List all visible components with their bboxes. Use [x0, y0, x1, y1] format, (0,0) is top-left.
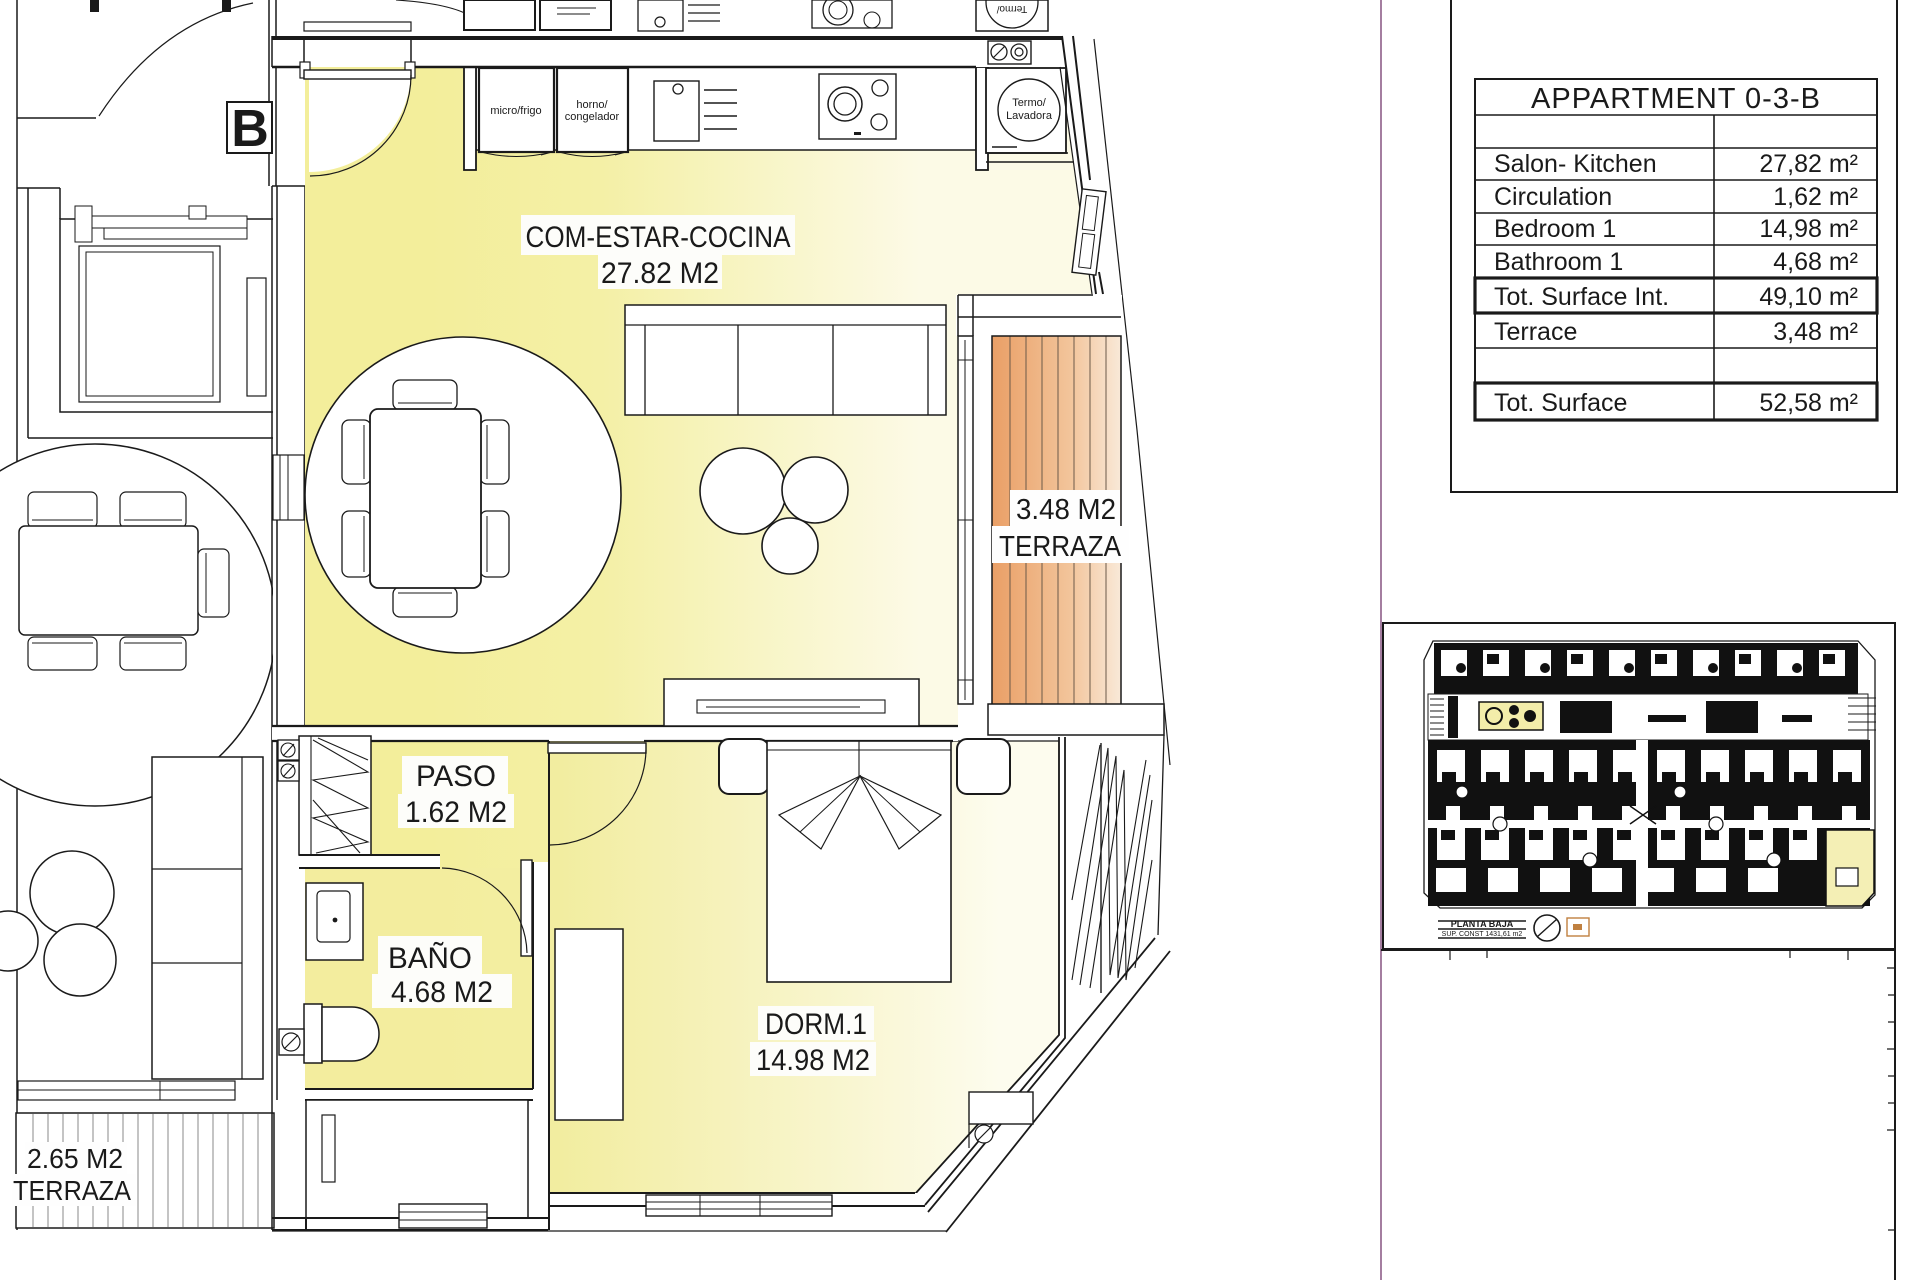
svg-text:4,68 m²: 4,68 m²	[1773, 248, 1858, 276]
svg-text:1.62 M2: 1.62 M2	[405, 796, 507, 829]
svg-text:14.98 M2: 14.98 M2	[756, 1044, 870, 1077]
svg-text:PLANTA BAJA: PLANTA BAJA	[1451, 919, 1514, 929]
svg-text:1,62 m²: 1,62 m²	[1773, 183, 1858, 211]
svg-text:4.68 M2: 4.68 M2	[391, 976, 493, 1009]
svg-text:Bathroom 1: Bathroom 1	[1494, 248, 1623, 276]
svg-text:3.48 M2: 3.48 M2	[1016, 494, 1116, 526]
svg-text:BAÑO: BAÑO	[388, 941, 472, 975]
svg-text:Lavadora: Lavadora	[1006, 110, 1053, 122]
svg-text:DORM.1: DORM.1	[765, 1008, 867, 1041]
svg-text:horno/: horno/	[576, 99, 608, 111]
svg-text:52,58 m²: 52,58 m²	[1759, 389, 1858, 417]
svg-text:Salon- Kitchen: Salon- Kitchen	[1494, 150, 1657, 178]
svg-text:27,82 m²: 27,82 m²	[1759, 150, 1858, 178]
svg-text:3,48 m²: 3,48 m²	[1773, 318, 1858, 346]
svg-text:congelador: congelador	[565, 111, 620, 123]
svg-text:Tot. Surface Int.: Tot. Surface Int.	[1494, 283, 1669, 311]
svg-text:27.82 M2: 27.82 M2	[601, 257, 719, 290]
svg-text:PASO: PASO	[416, 760, 496, 793]
svg-text:Bedroom 1: Bedroom 1	[1494, 215, 1616, 243]
svg-text:COM-ESTAR-COCINA: COM-ESTAR-COCINA	[526, 221, 791, 254]
svg-text:Tot. Surface: Tot. Surface	[1494, 389, 1627, 417]
svg-text:Termo/: Termo/	[996, 3, 1027, 14]
svg-text:Circulation: Circulation	[1494, 183, 1612, 211]
svg-text:Termo/: Termo/	[1012, 97, 1047, 109]
svg-text:APPARTMENT 0-3-B: APPARTMENT 0-3-B	[1531, 83, 1821, 115]
svg-text:TERRAZA: TERRAZA	[999, 531, 1122, 563]
svg-text:B: B	[231, 100, 269, 158]
svg-text:SUP. CONST 1431,61 m2: SUP. CONST 1431,61 m2	[1442, 931, 1523, 938]
svg-text:2.65 M2: 2.65 M2	[27, 1143, 123, 1174]
svg-text:micro/frigo: micro/frigo	[490, 105, 541, 117]
svg-text:TERRAZA: TERRAZA	[13, 1175, 131, 1206]
svg-text:Terrace: Terrace	[1494, 318, 1577, 346]
svg-text:14,98 m²: 14,98 m²	[1759, 215, 1858, 243]
svg-text:49,10 m²: 49,10 m²	[1759, 283, 1858, 311]
